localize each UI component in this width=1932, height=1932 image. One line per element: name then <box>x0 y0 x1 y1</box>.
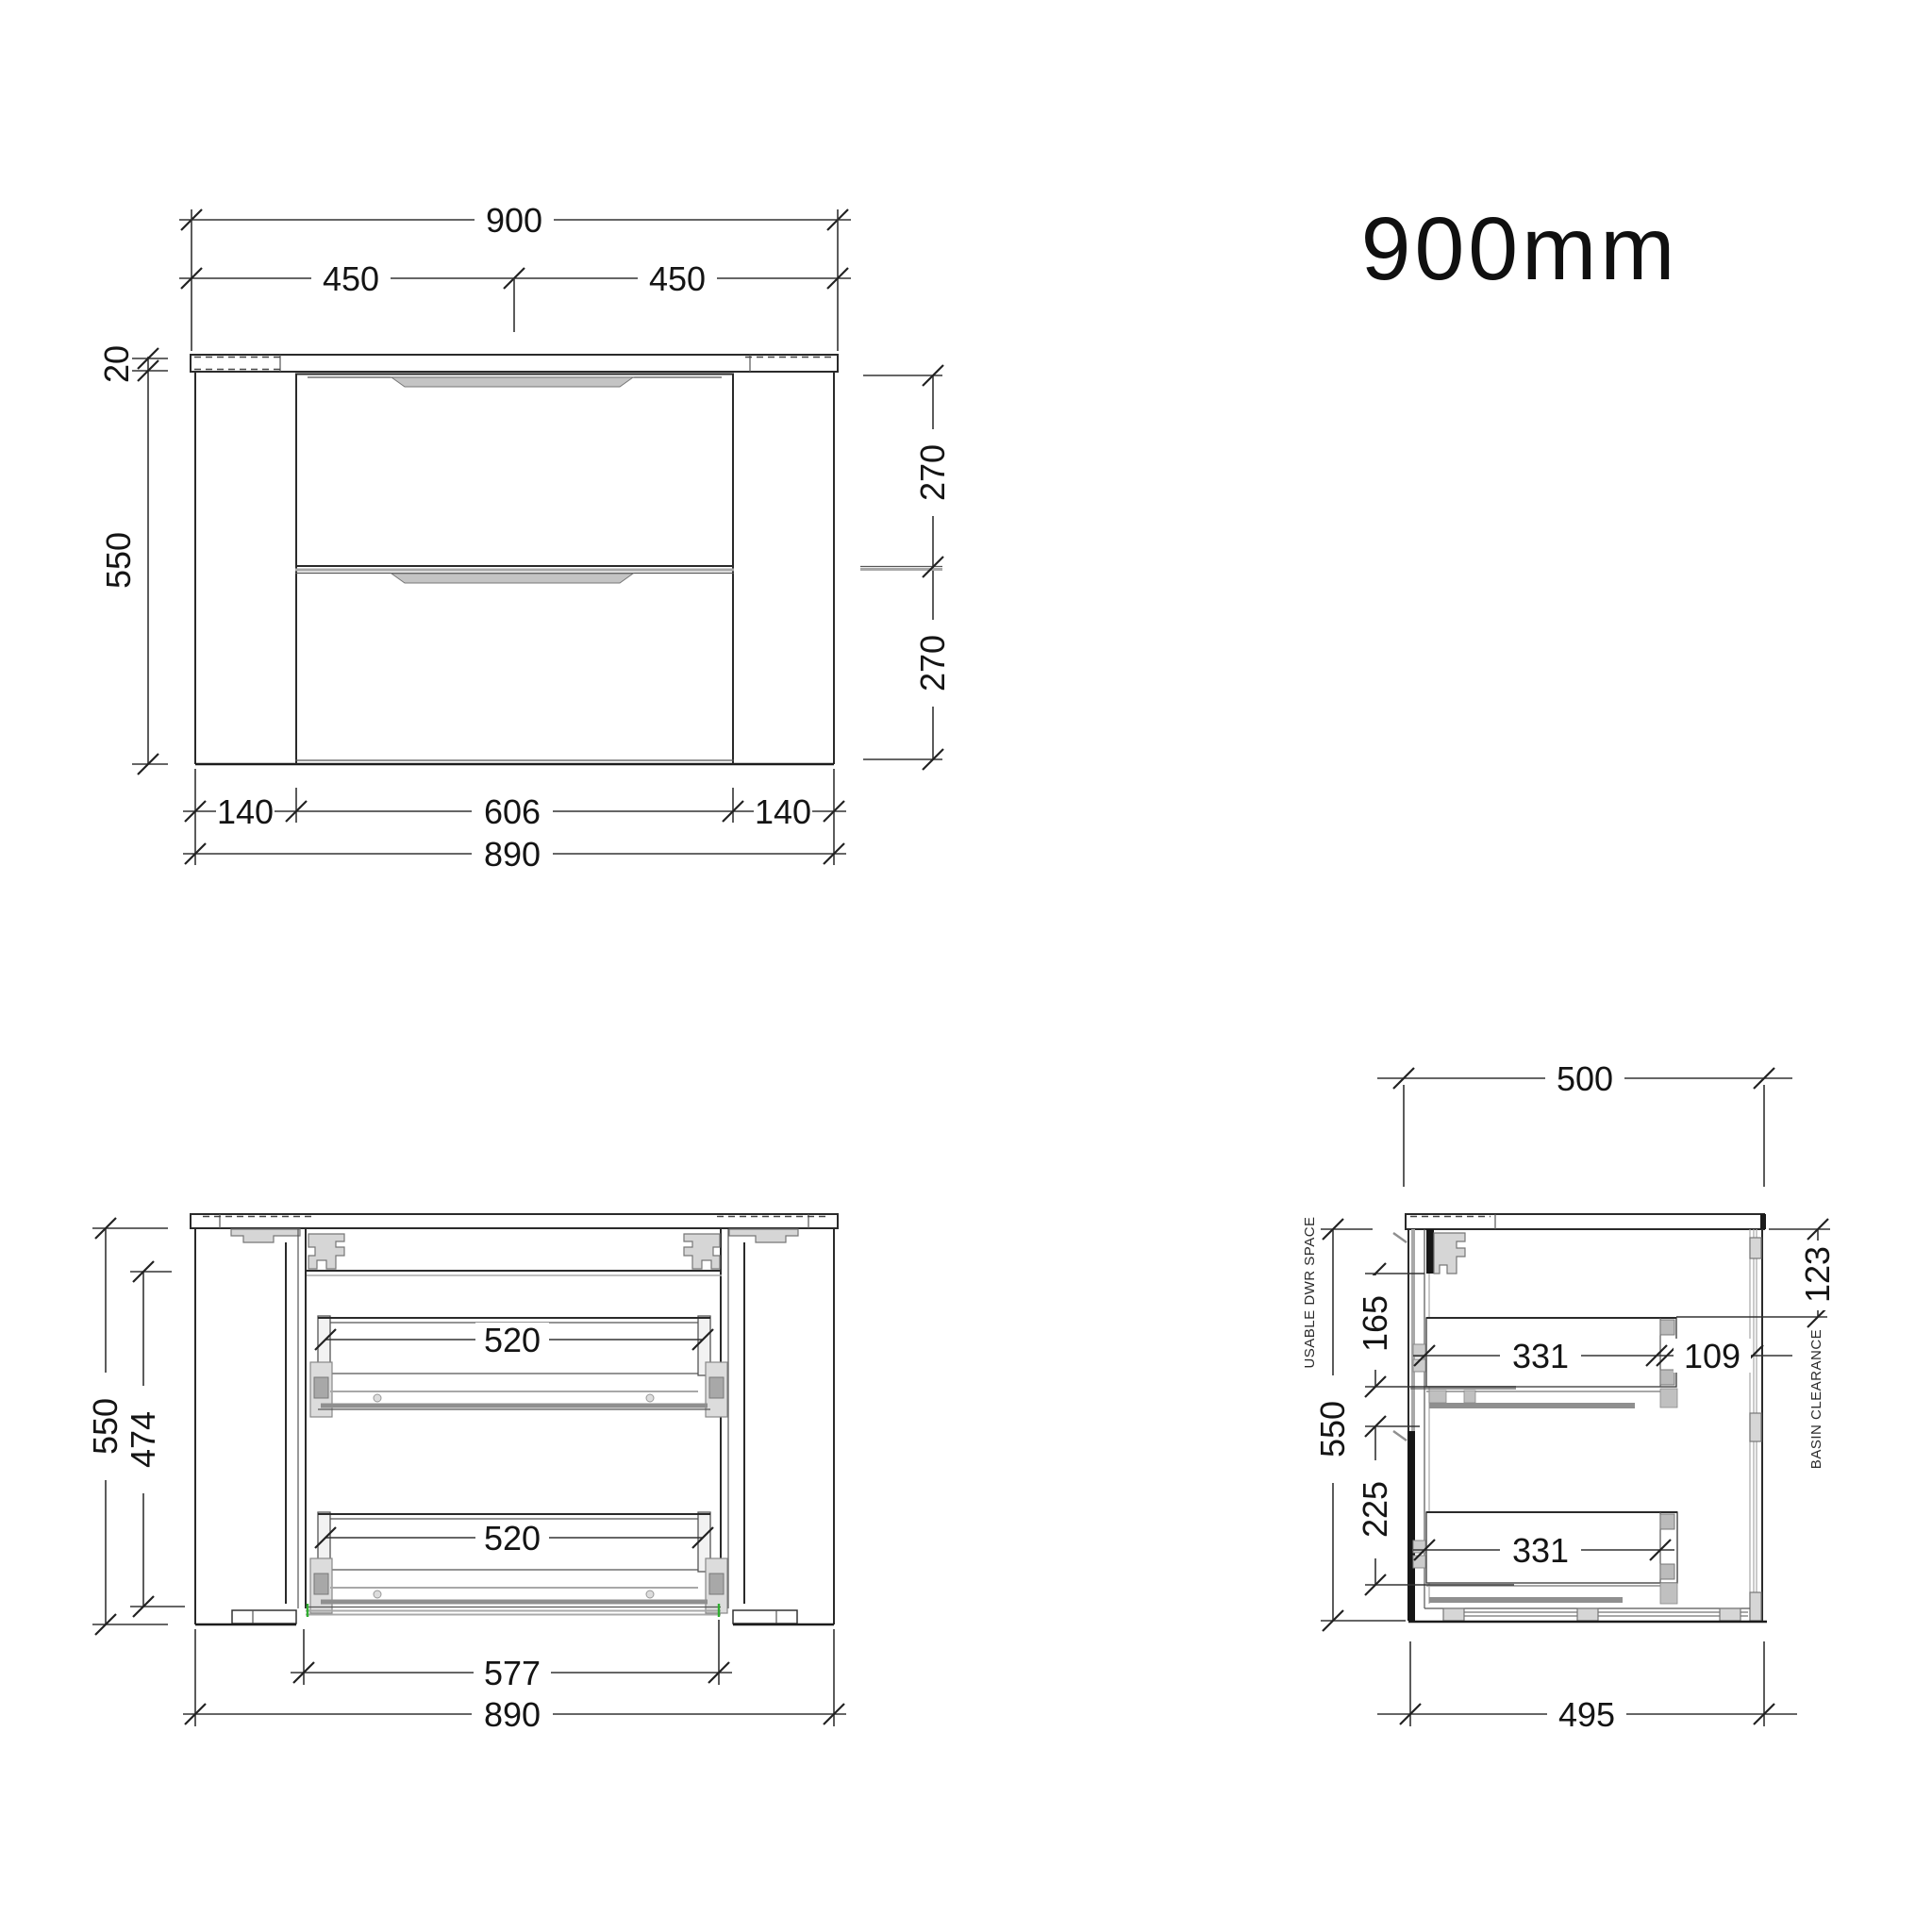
dim-basin-clearance-label: 123 <box>1798 1246 1837 1303</box>
dim-basin-clearance: 123 <box>1769 1219 1837 1327</box>
carcass-front <box>195 372 834 764</box>
wall-rail-left <box>231 1229 300 1242</box>
vanity-drawing-svg: 900mm 900 450 450 <box>0 0 1932 1932</box>
dim-drawer-top-width-label: 520 <box>484 1321 541 1359</box>
dim-back-gap-label: 109 <box>1684 1337 1740 1375</box>
drawer-handle-recess-top <box>391 377 633 387</box>
dim-overall-depth: 500 <box>1377 1059 1792 1187</box>
wall-bracket-side <box>1426 1229 1434 1274</box>
dim-internal-height-label: 474 <box>124 1411 162 1468</box>
dim-left-heights: 20 550 <box>97 345 168 774</box>
drawer-front-top <box>295 375 734 388</box>
wall-clip-right <box>684 1234 720 1269</box>
cabinet-base-internal <box>195 1604 834 1624</box>
drawer-handle-recess-bottom <box>391 574 633 583</box>
dim-internal-widths: 577 890 <box>183 1620 846 1734</box>
dim-internal-heights: 550 474 <box>86 1218 185 1635</box>
drawer-divider <box>295 566 734 574</box>
dim-half-widths: 450 450 <box>179 259 851 332</box>
dim-half-left-label: 450 <box>323 259 379 298</box>
dim-leg-left-label: 140 <box>217 792 274 831</box>
dim-base-depth: 495 <box>1377 1641 1797 1734</box>
dim-drawer-heights: 270 270 <box>860 365 952 770</box>
dim-overall-height-label: 550 <box>99 532 138 589</box>
wall-clip-side <box>1434 1233 1465 1274</box>
dim-carcass-width-label: 890 <box>484 835 541 874</box>
drawer-front-bottom <box>295 574 734 760</box>
dim-base-depth-label: 495 <box>1558 1695 1615 1734</box>
dim-internal-carcass-width-label: 890 <box>484 1695 541 1734</box>
dim-internal-width-label: 577 <box>484 1654 541 1692</box>
dim-leg-right-label: 140 <box>755 792 811 831</box>
cabinet-base-side <box>1408 1608 1767 1622</box>
dim-side-overall-height-label: 550 <box>1313 1401 1352 1457</box>
front-elevation-view: 900 450 450 <box>97 201 952 874</box>
dim-overall-depth-label: 500 <box>1557 1059 1613 1098</box>
dim-drawer-bottom-width-label: 520 <box>484 1519 541 1557</box>
dim-counter-thickness-label: 20 <box>97 345 136 383</box>
back-panel-side <box>1750 1229 1762 1623</box>
countertop-side <box>1406 1214 1766 1229</box>
wall-rail-right <box>729 1229 798 1242</box>
countertop-internal <box>191 1214 838 1228</box>
dim-internal-overall-height-label: 550 <box>86 1398 125 1455</box>
internal-front-view: 520 520 <box>86 1214 846 1734</box>
side-section-view: 500 <box>1302 1059 1837 1734</box>
dim-usable-bottom-label: 225 <box>1356 1481 1394 1538</box>
foot-right <box>733 1610 797 1624</box>
dim-overall-width-label: 900 <box>486 201 542 240</box>
dim-drawer-bottom-height-label: 270 <box>913 635 952 691</box>
dim-bottom-widths: 140 606 140 890 <box>183 769 846 874</box>
drawer-box-top: 520 <box>310 1316 727 1417</box>
dim-usable-top-label: 165 <box>1356 1295 1394 1352</box>
technical-drawing-page: 900mm 900 450 450 <box>0 0 1932 1932</box>
dim-drawer-bottom-depth-label: 331 <box>1512 1531 1569 1570</box>
dim-drawer-width-label: 606 <box>484 792 541 831</box>
usable-dwr-space-label: USABLE DWR SPACE <box>1302 1216 1318 1368</box>
wall-clip-left <box>308 1234 344 1269</box>
foot-left <box>232 1610 296 1624</box>
carcass-internal <box>195 1228 834 1624</box>
countertop-front <box>191 355 838 372</box>
dim-half-right-label: 450 <box>649 259 706 298</box>
dim-drawer-top-depth-label: 331 <box>1512 1337 1569 1375</box>
basin-clearance-text: BASIN CLEARANCE <box>1808 1329 1824 1469</box>
dim-drawer-top-height-label: 270 <box>913 444 952 501</box>
drawer-box-bottom: 520 <box>310 1512 727 1613</box>
page-title: 900mm <box>1361 199 1679 299</box>
